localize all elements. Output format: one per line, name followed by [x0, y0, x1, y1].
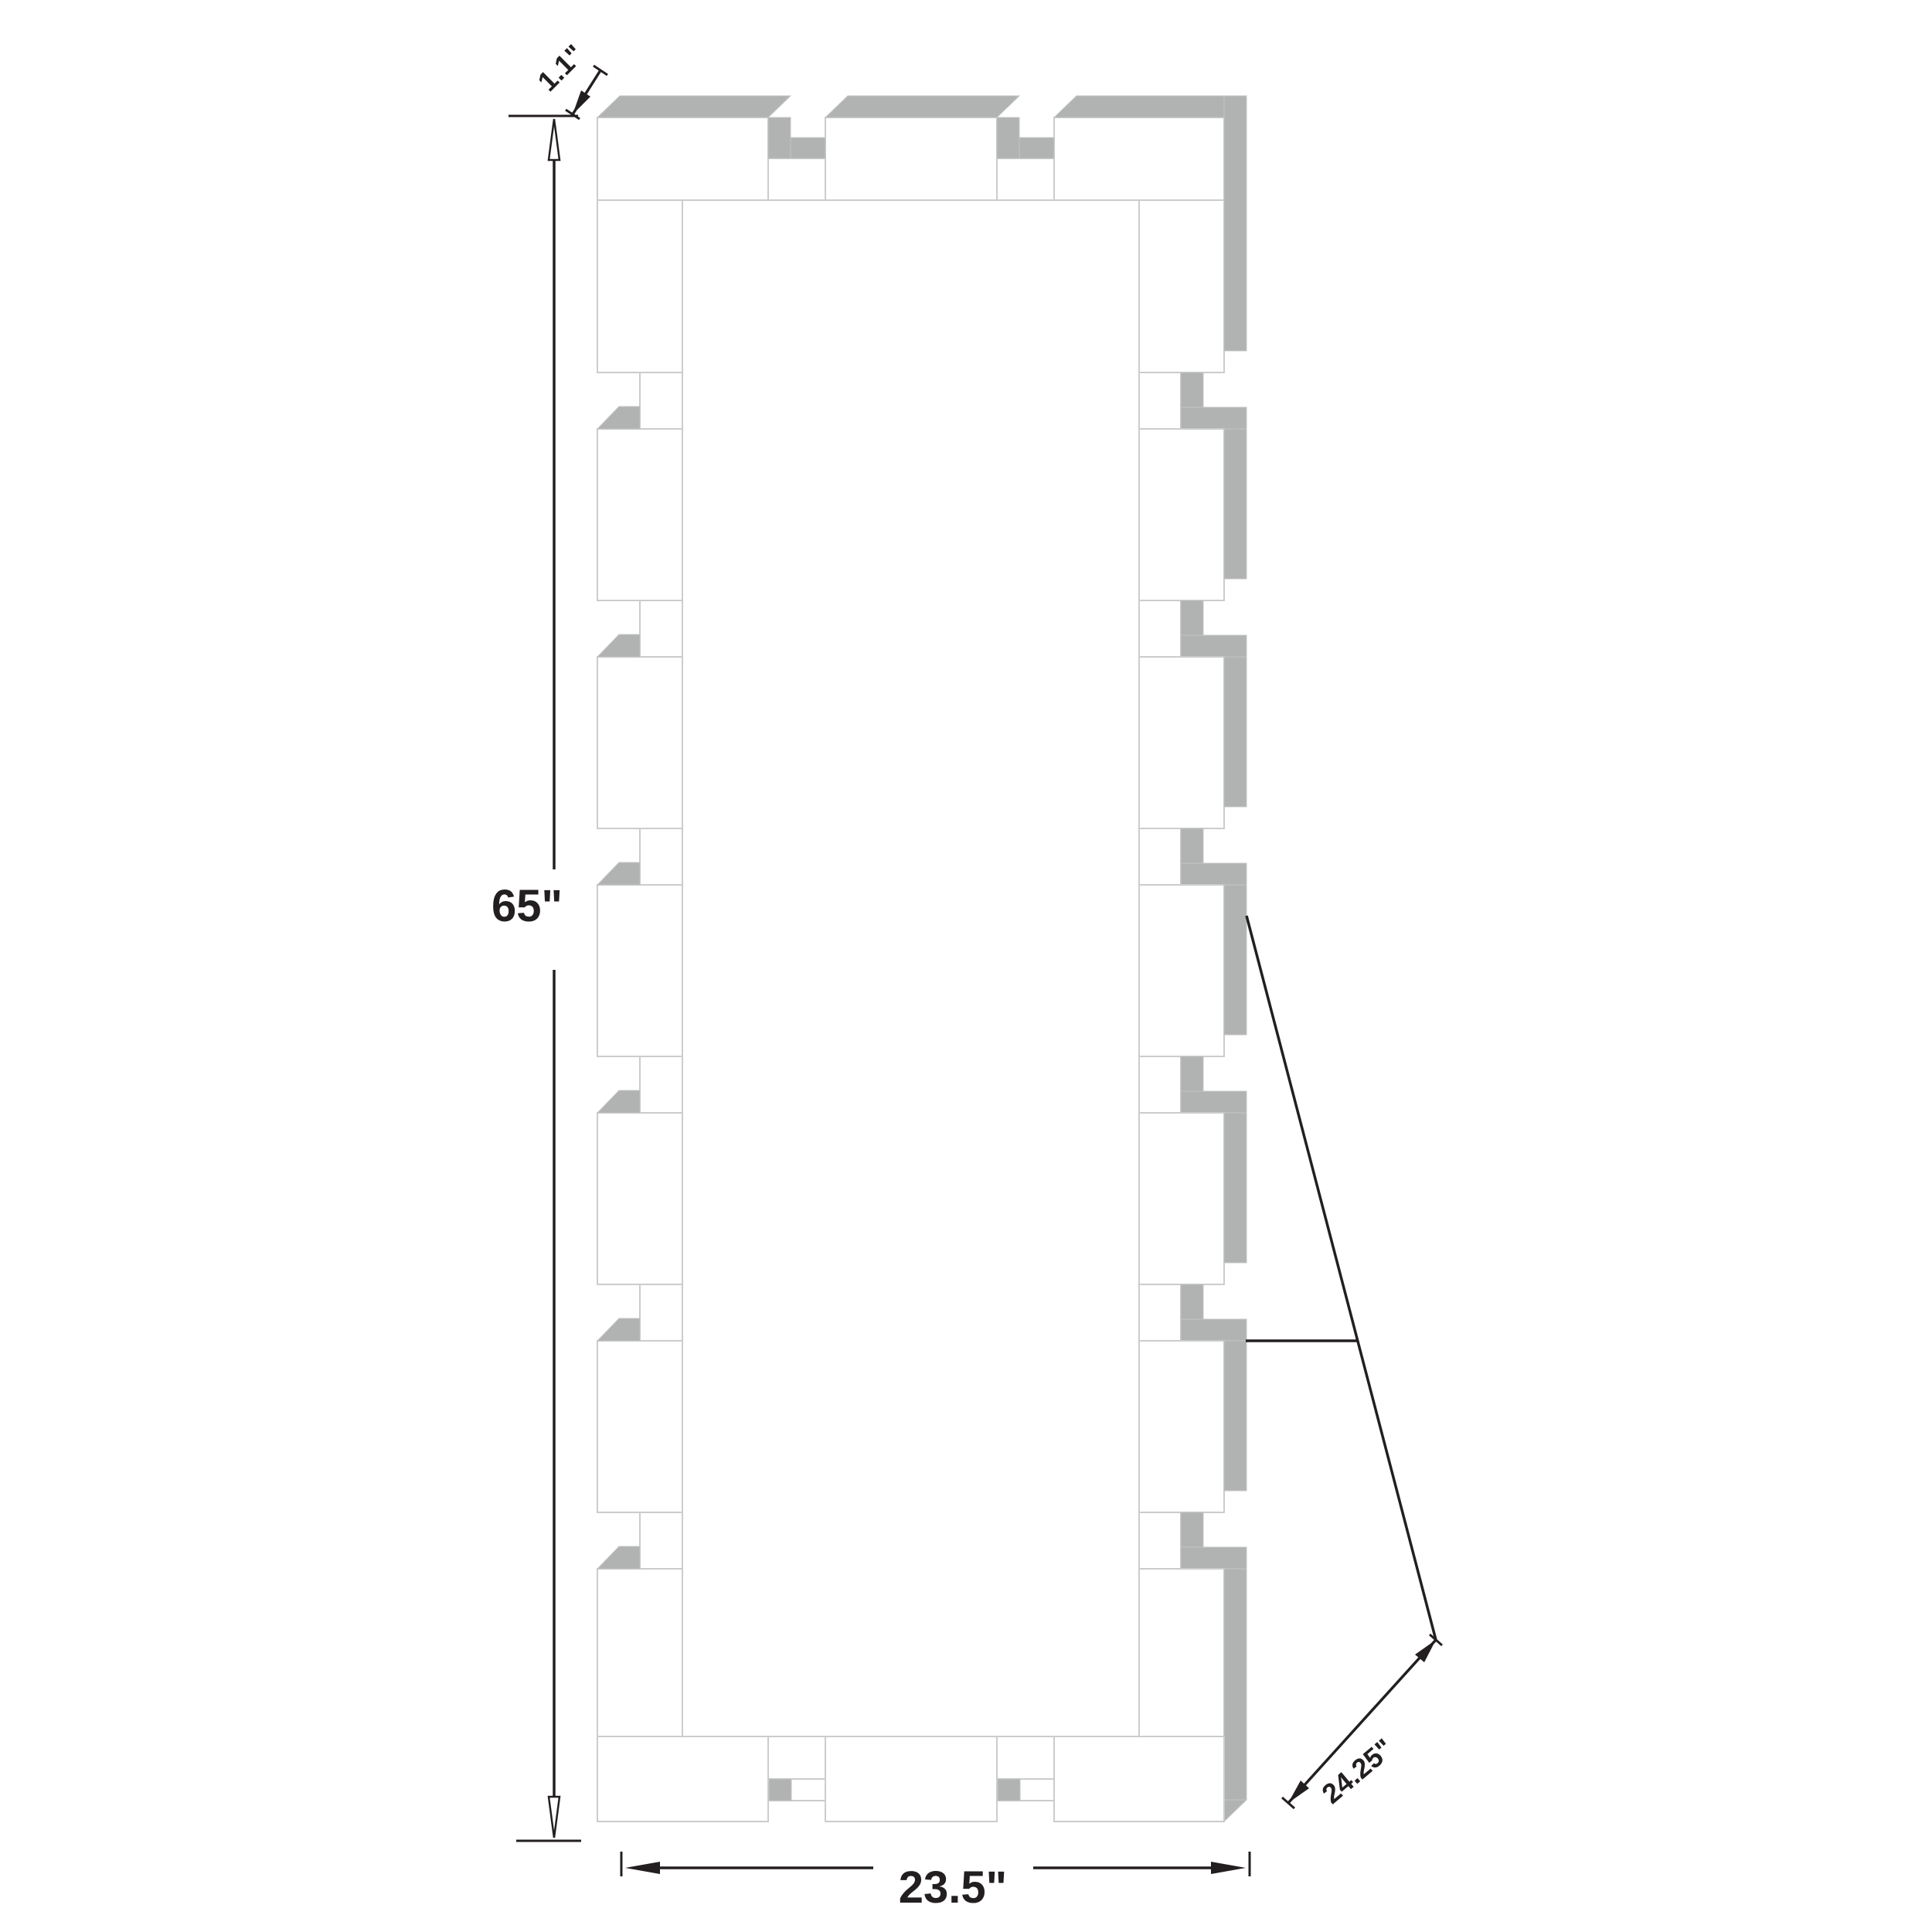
notch-side-face — [768, 117, 791, 158]
arrow-up-icon — [549, 119, 560, 160]
diagonal-label: 24.25" — [1315, 1732, 1399, 1809]
notch-side-face — [1181, 372, 1203, 407]
block-face — [1139, 657, 1224, 828]
dimension-diagram: 65" 23.5" 1.1" 24.25" — [0, 0, 1932, 1932]
block-face — [825, 117, 997, 200]
dimension-diagonal: 24.25" — [1246, 916, 1442, 1810]
block-face — [597, 1113, 682, 1284]
dimension-height: 65" — [492, 116, 581, 1841]
tick — [566, 110, 580, 119]
right-rail — [1139, 96, 1247, 1821]
block-face — [597, 429, 682, 600]
tab-top-face — [1181, 1547, 1247, 1569]
block-face — [825, 1736, 997, 1821]
block-face — [597, 200, 682, 372]
block-face — [1139, 1512, 1181, 1569]
block-face — [1054, 1736, 1224, 1821]
notch-side-face — [1181, 1056, 1203, 1091]
notch-side-face — [997, 117, 1019, 158]
block-face — [1139, 200, 1224, 372]
arrow-down-icon — [549, 1797, 560, 1838]
notch-floor — [768, 158, 825, 200]
block-face — [597, 1341, 682, 1512]
block-face — [1139, 372, 1181, 429]
notch-shadow — [998, 1779, 1020, 1801]
side-face — [1224, 1113, 1247, 1263]
dimension-thickness: 1.1" — [531, 38, 607, 119]
tab-top-face — [597, 1090, 640, 1113]
block-face — [640, 1512, 682, 1569]
top-rail — [597, 96, 1247, 200]
tab-top-face — [597, 862, 640, 885]
dimension-width: 23.5" — [621, 1852, 1250, 1913]
arrow-right-icon — [1211, 1862, 1246, 1874]
notch-shadow — [769, 1779, 791, 1801]
block-face — [597, 1736, 768, 1821]
arrow-left-icon — [625, 1862, 660, 1874]
side-face — [1224, 657, 1247, 807]
notch-side-face — [1181, 828, 1203, 863]
block-face — [1139, 1569, 1224, 1736]
notch-side-face — [1181, 1284, 1203, 1319]
frame — [597, 96, 1247, 1821]
block-face — [597, 117, 768, 200]
tick — [594, 66, 607, 75]
tab-top-face — [1181, 407, 1247, 429]
arrow-icon — [573, 90, 590, 114]
leader-line — [1247, 916, 1436, 1640]
tab-top-face — [597, 1318, 640, 1341]
side-face — [1224, 1569, 1247, 1800]
tab-top-face — [825, 96, 1019, 117]
tab-top-face — [597, 1546, 640, 1569]
left-rail — [597, 200, 682, 1736]
tab-top-face — [1181, 863, 1247, 885]
block-face — [1139, 600, 1181, 657]
notch-side-face — [1181, 1512, 1203, 1547]
block-face — [1139, 1056, 1181, 1113]
notch-top-face — [1019, 138, 1054, 158]
block-face — [640, 828, 682, 885]
tab-top-face — [1181, 1091, 1247, 1113]
block-face — [597, 657, 682, 828]
notch-floor — [997, 158, 1054, 200]
tab-top-face — [1181, 635, 1247, 657]
side-face — [1224, 1341, 1247, 1491]
tab-top-face — [597, 406, 640, 429]
side-face — [1224, 429, 1247, 579]
block-face — [640, 1056, 682, 1113]
tab-top-face — [597, 634, 640, 657]
tab-top-face — [1181, 1319, 1247, 1341]
frame-drawing: 65" 23.5" 1.1" 24.25" — [0, 0, 1932, 1932]
tab-top-face — [1054, 96, 1247, 117]
block-face — [1139, 1284, 1181, 1341]
block-face — [597, 885, 682, 1056]
block-face — [1139, 828, 1181, 885]
side-face — [1224, 885, 1247, 1035]
height-label: 65" — [492, 881, 563, 931]
bottom-rail — [597, 1736, 1224, 1821]
block-face — [1054, 117, 1224, 200]
side-face — [1224, 96, 1247, 351]
block-face — [640, 600, 682, 657]
width-label: 23.5" — [899, 1862, 1007, 1913]
notch-side-face — [1181, 600, 1203, 635]
mirror-opening — [682, 200, 1139, 1736]
side-face-corner — [1224, 1800, 1247, 1821]
block-face — [1139, 429, 1224, 600]
tab-top-face — [597, 96, 791, 117]
block-face — [1139, 885, 1224, 1056]
thickness-label: 1.1" — [531, 38, 590, 97]
block-face — [1139, 1341, 1224, 1512]
block-face — [640, 372, 682, 429]
block-face — [597, 1569, 682, 1736]
block-face — [1139, 1113, 1224, 1284]
block-face — [640, 1284, 682, 1341]
notch-top-face — [791, 138, 825, 158]
